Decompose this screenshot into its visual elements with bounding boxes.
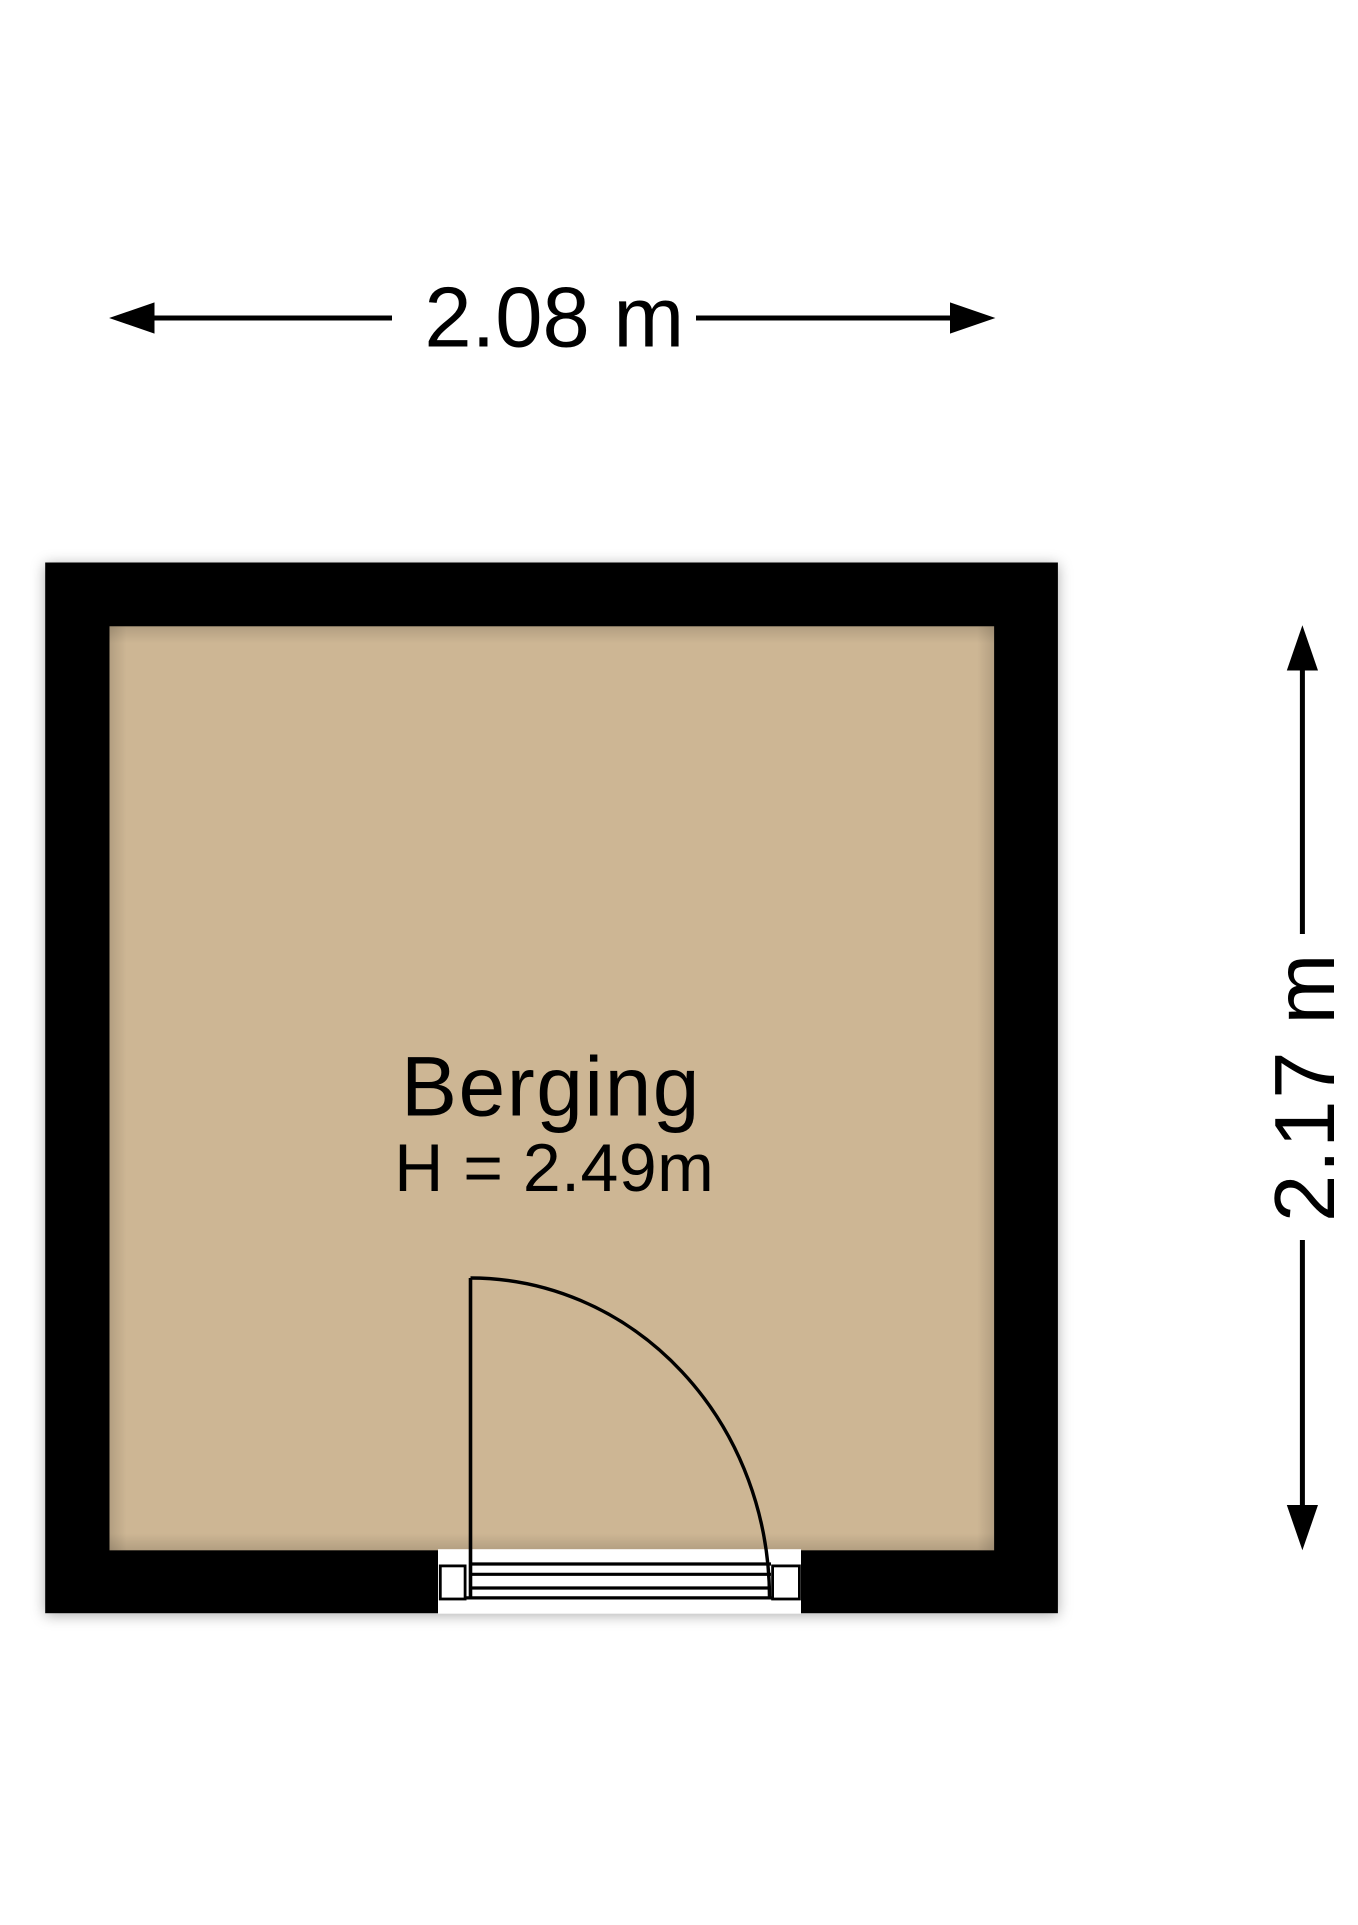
svg-text:2.08 m: 2.08 m (424, 270, 684, 365)
svg-text:Berging: Berging (401, 1040, 701, 1134)
svg-text:H = 2.49m: H = 2.49m (394, 1130, 714, 1206)
svg-text:2.17 m: 2.17 m (1258, 952, 1353, 1222)
